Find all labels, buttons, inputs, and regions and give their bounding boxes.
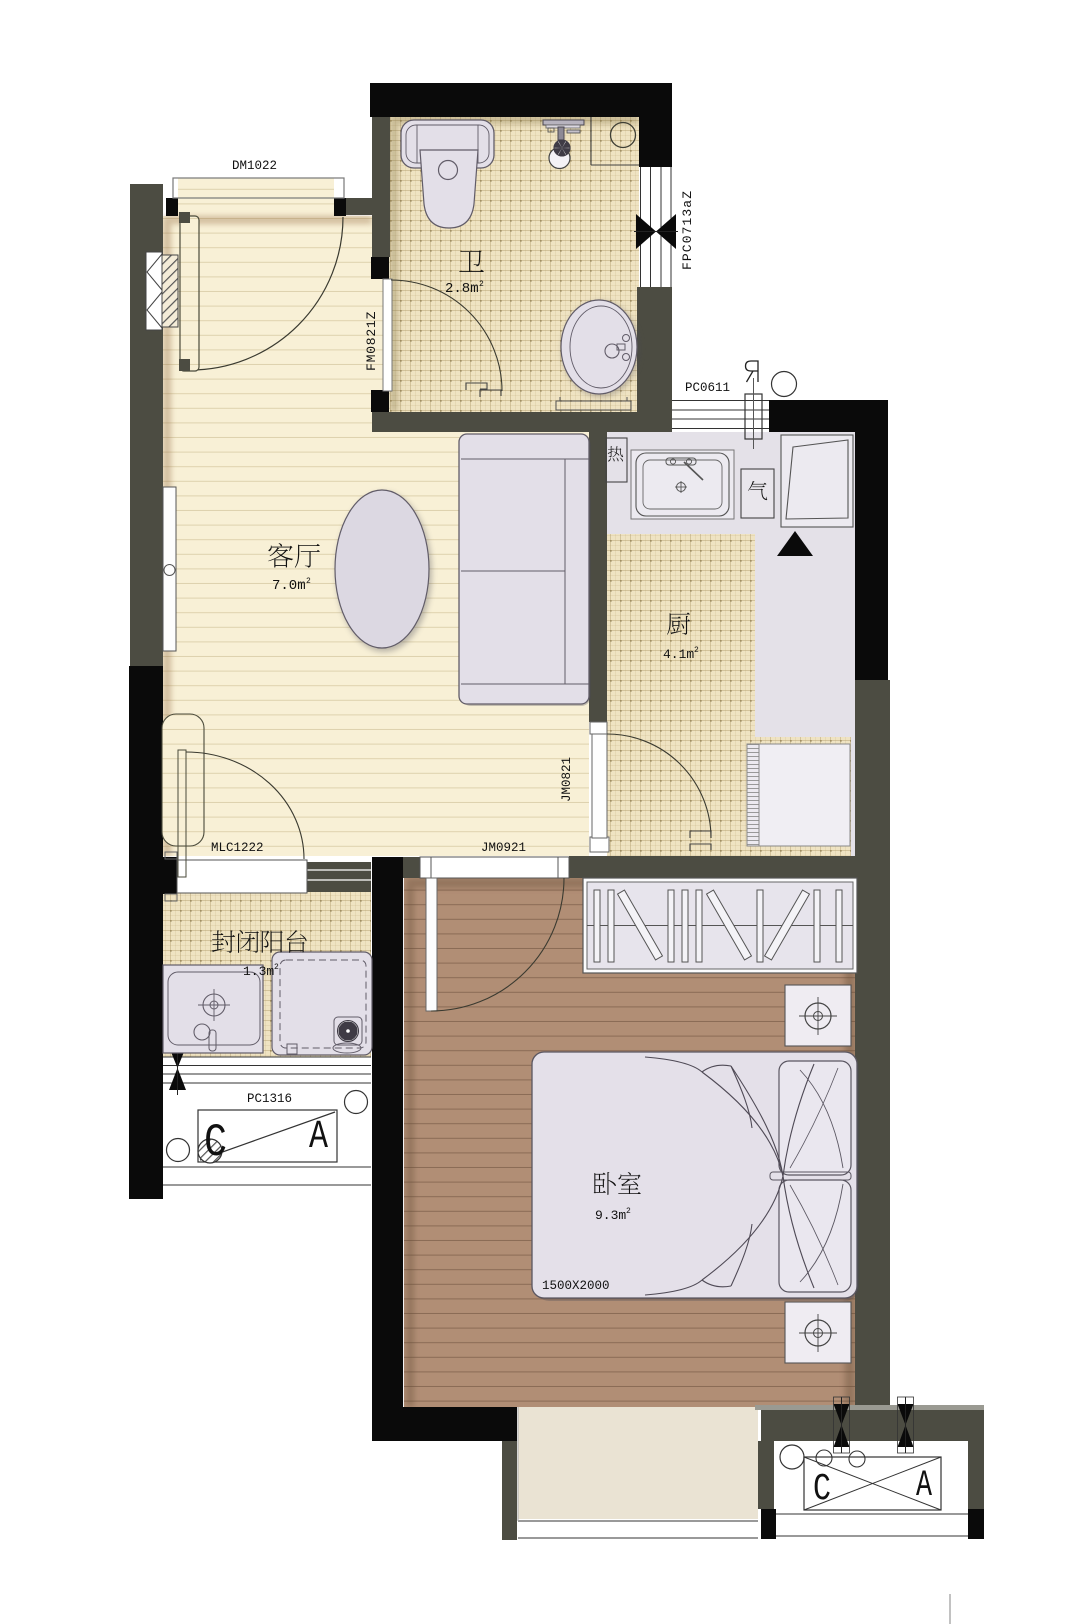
svg-text:JM0821: JM0821	[560, 757, 574, 802]
svg-text:2: 2	[626, 1207, 631, 1216]
svg-text:2: 2	[479, 280, 484, 289]
svg-text:JM0921: JM0921	[481, 841, 526, 855]
svg-text:FM0821Z: FM0821Z	[364, 311, 379, 371]
svg-text:DM1022: DM1022	[232, 159, 277, 173]
svg-text:4.1m: 4.1m	[663, 647, 694, 662]
svg-text:FPC0713aZ: FPC0713aZ	[680, 190, 695, 270]
svg-text:1500X2000: 1500X2000	[542, 1279, 610, 1293]
svg-text:MLC1222: MLC1222	[211, 841, 264, 855]
svg-text:PC1316: PC1316	[247, 1092, 292, 1106]
svg-text:C: C	[813, 1468, 831, 1511]
svg-text:A: A	[309, 1115, 328, 1160]
svg-text:PC0611: PC0611	[685, 381, 730, 395]
svg-text:2: 2	[306, 577, 311, 586]
svg-text:7.0m: 7.0m	[272, 578, 306, 594]
svg-text:2: 2	[274, 963, 279, 972]
svg-text:2.8m: 2.8m	[445, 281, 479, 297]
svg-text:9.3m: 9.3m	[595, 1208, 626, 1223]
svg-text:A: A	[916, 1465, 933, 1507]
svg-text:C: C	[204, 1117, 227, 1169]
svg-text:1.3m: 1.3m	[243, 964, 274, 979]
svg-text:2: 2	[694, 646, 699, 655]
